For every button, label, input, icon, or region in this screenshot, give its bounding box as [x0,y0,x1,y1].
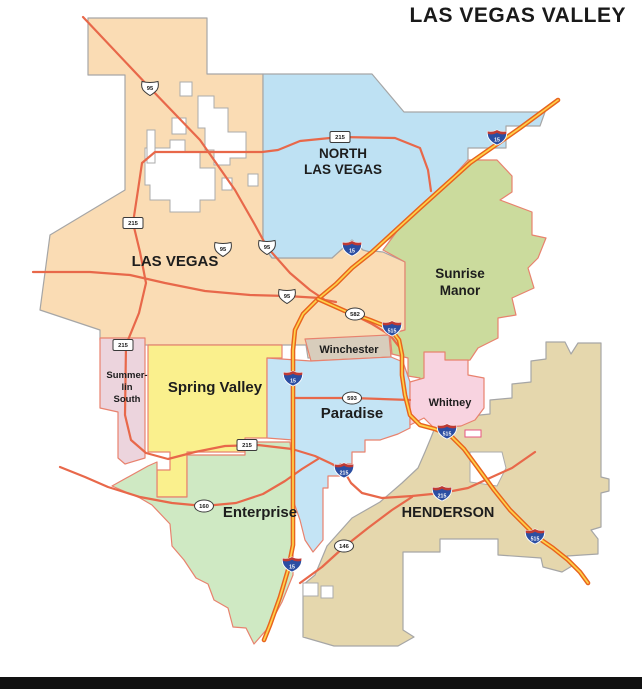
region-label-las-vegas: LAS VEGAS [132,253,219,270]
shield-oval-582: 582 [346,308,365,320]
shield-oval-146: 146 [335,540,354,552]
shield-rect-215: 215 [123,218,143,229]
shield-oval-593: 593 [343,392,362,404]
shield-label: 215 [118,343,128,349]
enclave-lv-hole-3 [180,82,192,96]
shield-label: 515 [531,536,540,542]
region-label-henderson: HENDERSON [402,505,495,521]
region-enterprise [112,442,293,644]
shield-rect-215: 215 [330,132,350,143]
shield-label: 515 [443,431,452,437]
bottom-bar [0,677,642,689]
shield-label: 215 [242,443,252,449]
shield-label: 15 [290,378,296,384]
region-label-enterprise: Enterprise [223,504,297,521]
shield-rect-215: 215 [113,340,133,351]
shield-label: 582 [350,312,360,318]
enclave-lv-hole-4 [172,118,186,134]
shield-label: 593 [347,396,357,402]
shield-label: 15 [349,248,355,254]
shield-rect-215: 215 [237,440,257,451]
shield-label: 146 [339,544,349,550]
shield-label: 160 [199,504,209,510]
enclave-hen-hole-3 [321,586,333,598]
shield-oval-160: 160 [195,500,214,512]
las-vegas-valley-map: 9595959521521521521558259316014615151515… [0,0,642,689]
region-label-whitney: Whitney [429,397,473,409]
map-title: LAS VEGAS VALLEY [410,4,626,28]
region-label-spring-valley: Spring Valley [168,379,263,396]
shield-label: 15 [289,564,295,570]
region-label-winchester: Winchester [319,344,379,356]
enclave-lv-hole-7 [248,174,258,186]
shield-label: 95 [264,245,271,251]
enclave-hen-hole-2 [303,583,318,596]
shield-label: 215 [335,135,345,141]
shield-label: 95 [147,86,154,92]
enclave-pink-enclave [465,430,481,437]
shield-label: 15 [494,137,500,143]
shield-label: 215 [438,493,447,499]
shield-label: 515 [388,328,397,334]
shield-label: 95 [220,247,227,253]
region-label-paradise: Paradise [321,405,384,422]
shield-label: 215 [340,470,349,476]
map-canvas: 9595959521521521521558259316014615151515… [0,0,642,689]
shield-label: 95 [284,294,291,300]
shield-label: 215 [128,221,138,227]
